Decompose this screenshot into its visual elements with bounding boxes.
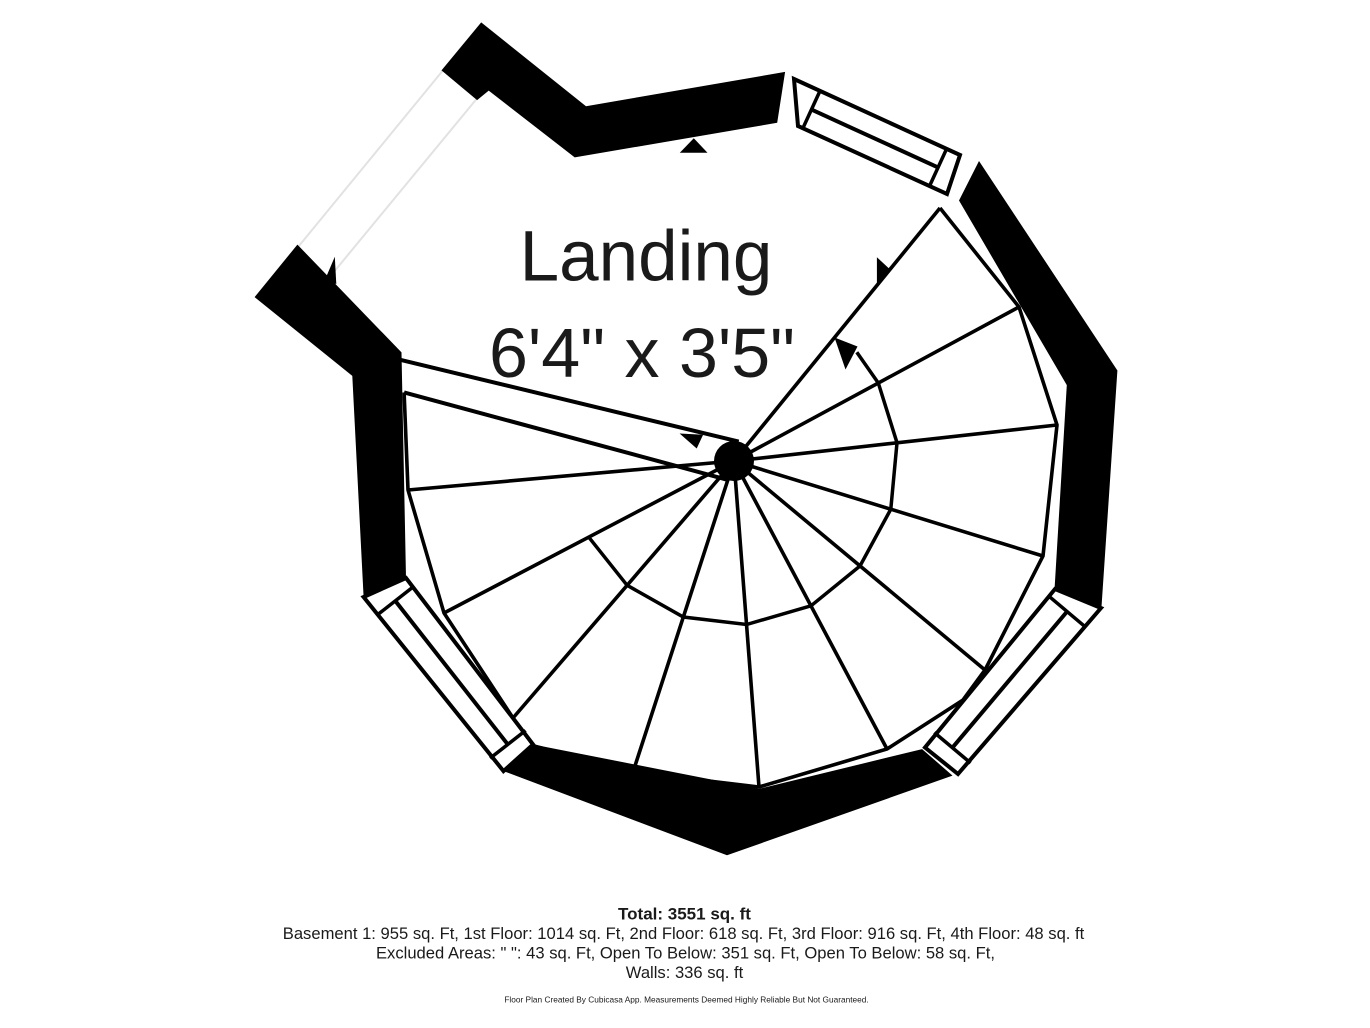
svg-text:Walls: 336 sq. ft: Walls: 336 sq. ft — [626, 963, 744, 982]
svg-text:Floor Plan Created By Cubicasa: Floor Plan Created By Cubicasa App. Meas… — [504, 994, 868, 1004]
svg-text:Basement 1: 955 sq. Ft, 1st Fl: Basement 1: 955 sq. Ft, 1st Floor: 1014 … — [283, 924, 1085, 943]
svg-text:Total: 3551 sq. ft: Total: 3551 sq. ft — [618, 905, 751, 924]
svg-text:6'4" x 3'5": 6'4" x 3'5" — [489, 314, 795, 392]
svg-text:Excluded Areas: " ": 43 sq. Ft: Excluded Areas: " ": 43 sq. Ft, Open To … — [376, 944, 995, 963]
svg-text:Landing: Landing — [520, 218, 773, 297]
